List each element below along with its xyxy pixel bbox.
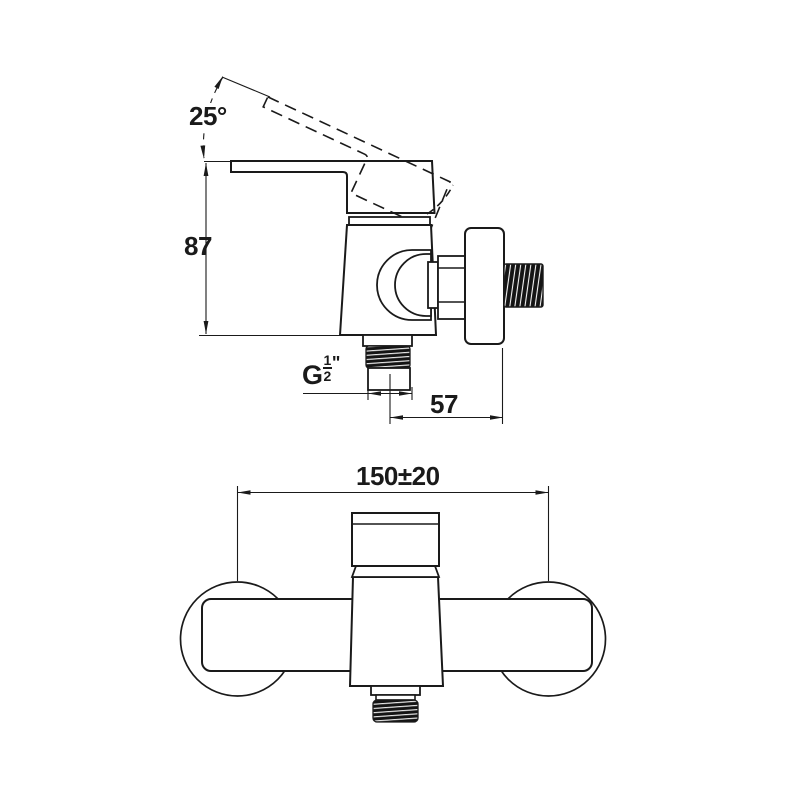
front-view xyxy=(181,513,606,722)
thread-inch-mark: " xyxy=(332,355,340,371)
rotation-arc-dashed xyxy=(427,185,453,214)
handle-cap-front xyxy=(352,513,439,566)
angle-leader-line xyxy=(222,77,270,97)
outlet-nipple-side xyxy=(368,368,410,390)
hex-nut xyxy=(438,256,465,319)
height-dimension-label: 87 xyxy=(184,233,212,259)
thread-fraction-numerator: 1 xyxy=(323,354,332,369)
technical-drawing-canvas: 25° 87 G 1 2 " 57 150±20 xyxy=(0,0,800,800)
handle-neck-front xyxy=(352,566,439,577)
side-view xyxy=(231,97,543,390)
mixer-body-front xyxy=(350,577,443,686)
outlet-thread-side xyxy=(366,346,410,368)
angle-dimension-label: 25° xyxy=(187,103,229,129)
thread-prefix: G xyxy=(302,362,323,388)
lever-handle xyxy=(231,161,435,213)
outlet-thread-front xyxy=(373,700,418,722)
offset-dimension-label: 57 xyxy=(430,391,458,417)
faucet-diagram-svg xyxy=(0,0,800,800)
wall-flange-side xyxy=(465,228,504,344)
outlet-step1-front xyxy=(371,686,420,695)
connector-plate xyxy=(428,262,438,308)
thread-fraction: 1 2 xyxy=(323,354,332,382)
outlet-step-side xyxy=(363,335,412,346)
mount-centers-dimension-label: 150±20 xyxy=(356,463,440,489)
thread-dimension-label: G 1 2 " xyxy=(302,362,340,388)
handle-collar xyxy=(349,217,430,225)
thread-fraction-denominator: 2 xyxy=(324,369,331,382)
wall-pipe-thread xyxy=(504,264,543,307)
outlet-step2-front xyxy=(376,695,415,700)
raised-lever-dashed xyxy=(246,97,452,230)
